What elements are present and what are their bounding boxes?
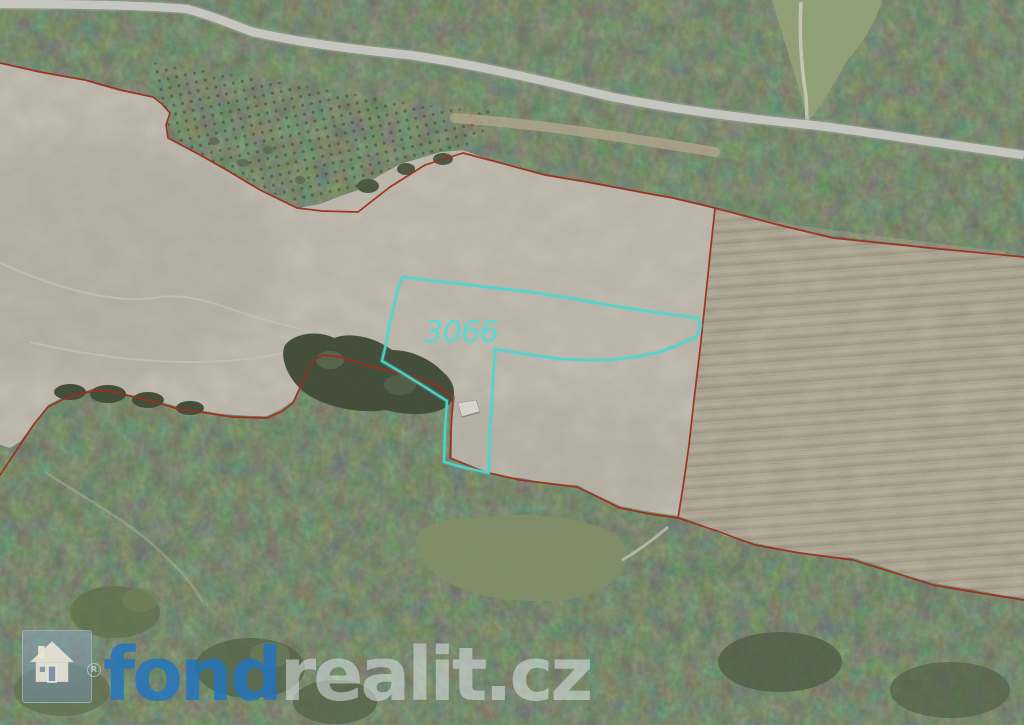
- parcel-label: 3066: [424, 315, 498, 350]
- photo-tone-overlay: [0, 0, 1024, 725]
- aerial-map: 3066: [0, 0, 1024, 725]
- aerial-photo: 3066 R fondrealit.cz: [0, 0, 1024, 725]
